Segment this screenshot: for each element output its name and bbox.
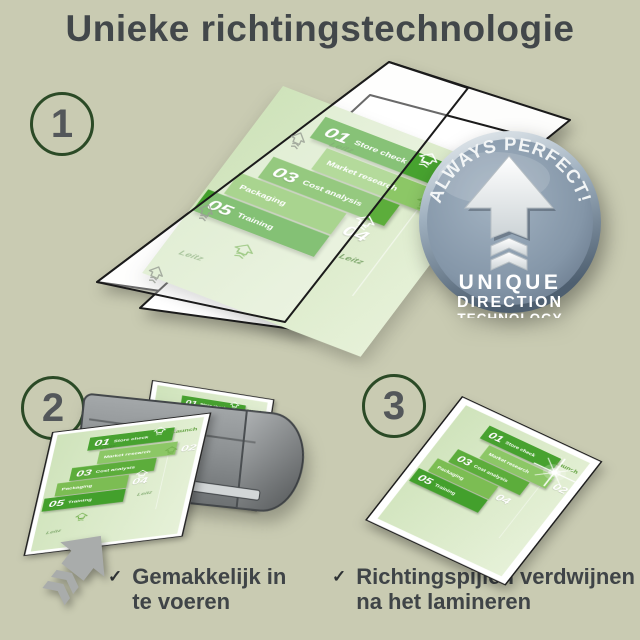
badge-line2: DIRECTION bbox=[457, 294, 563, 311]
doc-step-label: Packaging bbox=[61, 483, 93, 491]
doc-step-number: 01 bbox=[487, 430, 506, 444]
doc-step-label: Training bbox=[235, 211, 275, 231]
doc-step-label: Market research bbox=[103, 449, 151, 459]
step-number: 3 bbox=[383, 384, 405, 429]
step-number: 2 bbox=[42, 386, 64, 431]
doc-step-label: Cost analysis bbox=[95, 465, 135, 474]
feed-direction-arrow-icon bbox=[20, 515, 130, 623]
doc-step-label: Training bbox=[68, 497, 93, 504]
infographic-canvas: Unieke richtingstechnologie 01 Store che… bbox=[0, 0, 640, 640]
checklist-line: te voeren bbox=[132, 589, 286, 614]
doc-step-label: Store check bbox=[113, 435, 149, 443]
checklist-item-feed: ✓ Gemakkelijk in te voeren bbox=[108, 564, 286, 615]
always-perfect-badge: ALWAYS PERFECT! UNIQUE DIRECTION TECHNOL… bbox=[414, 126, 606, 318]
step-circle-3: 3 bbox=[362, 374, 426, 438]
direction-arrow-icon bbox=[225, 240, 261, 264]
checklist-line: na het lamineren bbox=[356, 589, 635, 614]
page-title: Unieke richtingstechnologie bbox=[0, 8, 640, 50]
doc-step-number: 04 bbox=[493, 493, 512, 507]
brand-watermark: Leitz bbox=[337, 253, 366, 266]
doc-step-number: 03 bbox=[75, 468, 92, 478]
doc-step-number: 05 bbox=[416, 473, 435, 487]
doc-step-number: 02 bbox=[180, 443, 197, 453]
direction-arrow-icon bbox=[162, 445, 180, 456]
doc-step-number: 05 bbox=[48, 499, 65, 509]
checklist-line: Gemakkelijk in bbox=[132, 564, 286, 589]
brand-watermark: Leitz bbox=[136, 490, 153, 497]
doc-step-number: 03 bbox=[455, 454, 474, 468]
checklist-text: Gemakkelijk in te voeren bbox=[132, 564, 286, 615]
badge-line1: UNIQUE bbox=[459, 271, 562, 294]
brand-watermark: Leitz bbox=[177, 249, 206, 262]
doc-step-label: Training bbox=[434, 482, 457, 495]
doc-step-number: 03 bbox=[269, 164, 302, 186]
check-icon: ✓ bbox=[332, 567, 346, 615]
badge-line3: TECHNOLOGY bbox=[457, 311, 562, 318]
launch-label: Launch bbox=[171, 427, 198, 435]
direction-arrow-icon bbox=[133, 469, 151, 480]
doc-step-number: 05 bbox=[204, 197, 237, 219]
